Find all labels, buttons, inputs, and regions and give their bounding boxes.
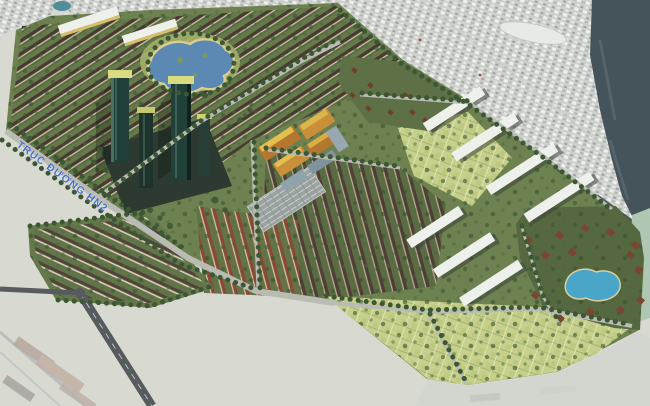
tower-roof xyxy=(137,107,155,113)
tower-body xyxy=(199,118,210,176)
road-junction xyxy=(75,288,85,298)
tower-body xyxy=(139,112,153,188)
tower-roof xyxy=(108,70,132,78)
resort-pool xyxy=(565,269,620,301)
lake-island xyxy=(203,53,208,58)
small-pond xyxy=(53,1,71,11)
aerial-masterplan-rendering: TRỤC ĐƯỜNG HN2 xyxy=(0,0,650,406)
lake-island xyxy=(177,57,183,63)
tower-roof xyxy=(168,76,194,84)
scene-canvas: TRỤC ĐƯỜNG HN2 xyxy=(0,0,650,406)
